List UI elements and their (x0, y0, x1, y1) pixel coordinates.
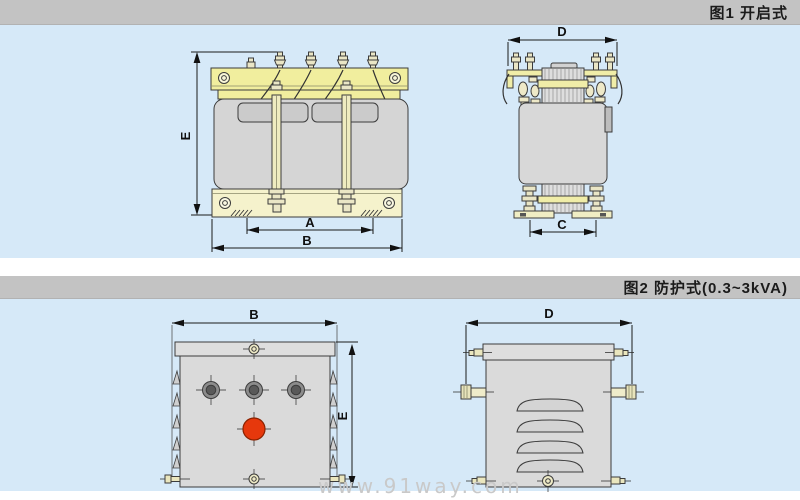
fig1-side-core-bottom (522, 184, 604, 213)
fig2-dim-label-D: D (544, 306, 553, 321)
fig1-dim-label-E: E (178, 131, 193, 140)
fig1-dim-label-D: D (557, 24, 566, 39)
fig1-dim-label-B: B (302, 233, 311, 248)
fig1-dimension-C: C (530, 217, 596, 237)
fig2-dim-label-B: B (249, 307, 258, 322)
fig1-base (212, 189, 402, 217)
fig1-dim-label-A: A (305, 215, 315, 230)
fig1-coil-block (214, 99, 408, 189)
fig1-dimension-A: A (247, 215, 373, 234)
fig1-side-core-top (538, 63, 588, 103)
fig1-dim-label-C: C (557, 217, 567, 232)
fig2-side-view: D (453, 306, 644, 492)
page: 图1 开启式 图2 防护式(0.3~3kVA) E (0, 0, 800, 500)
watermark: www.91way.com (318, 474, 523, 498)
technical-drawings: E (0, 0, 800, 500)
fig2-enclosure-front (175, 342, 335, 487)
fig1-side-coil-body (519, 103, 612, 184)
fig2-dim-label-E: E (335, 411, 350, 420)
fig1-side-view: D (503, 24, 622, 237)
fig2-front-view: B (160, 307, 358, 489)
fig1-front-view: E (178, 52, 408, 252)
